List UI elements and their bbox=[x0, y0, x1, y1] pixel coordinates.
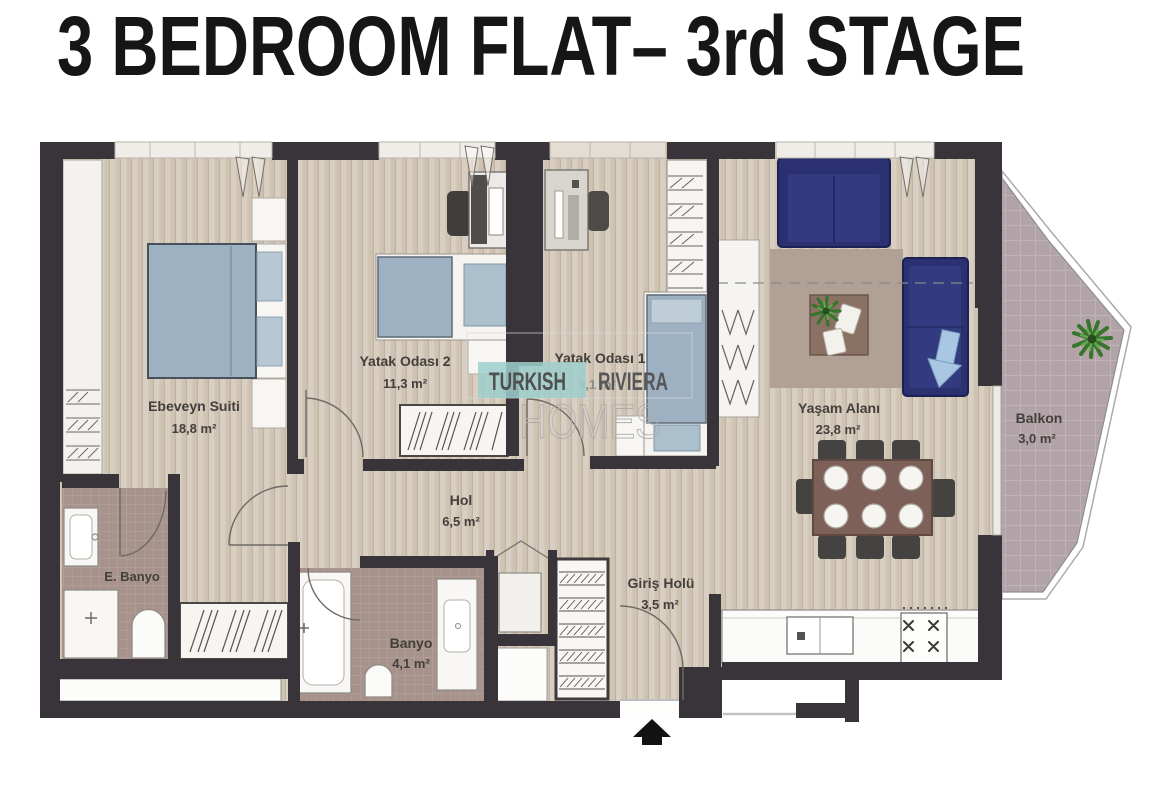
svg-text:3 BEDROOM FLAT– 3rd STAGE: 3 BEDROOM FLAT– 3rd STAGE bbox=[57, 0, 1025, 93]
svg-text:Giriş Holü: Giriş Holü bbox=[628, 575, 695, 591]
svg-text:Balkon: Balkon bbox=[1016, 410, 1063, 426]
svg-text:4,1 m²: 4,1 m² bbox=[392, 656, 430, 671]
svg-text:RIVIERA: RIVIERA bbox=[598, 368, 668, 396]
svg-text:18,8 m²: 18,8 m² bbox=[172, 421, 217, 436]
svg-text:Yaşam Alanı: Yaşam Alanı bbox=[798, 400, 880, 416]
svg-text:Yatak Odası 2: Yatak Odası 2 bbox=[359, 353, 450, 369]
svg-text:6,5 m²: 6,5 m² bbox=[442, 514, 480, 529]
svg-text:HOMES: HOMES bbox=[519, 396, 661, 449]
svg-text:Hol: Hol bbox=[450, 492, 473, 508]
svg-text:11,3 m²: 11,3 m² bbox=[383, 376, 428, 391]
svg-text:23,8 m²: 23,8 m² bbox=[816, 422, 861, 437]
svg-text:Banyo: Banyo bbox=[390, 635, 433, 651]
svg-text:3,5 m²: 3,5 m² bbox=[641, 597, 679, 612]
svg-text:TURKISH: TURKISH bbox=[489, 368, 566, 396]
svg-text:Ebeveyn Suiti: Ebeveyn Suiti bbox=[148, 398, 240, 414]
svg-text:E. Banyo: E. Banyo bbox=[104, 569, 160, 584]
svg-text:3,0 m²: 3,0 m² bbox=[1018, 431, 1056, 446]
